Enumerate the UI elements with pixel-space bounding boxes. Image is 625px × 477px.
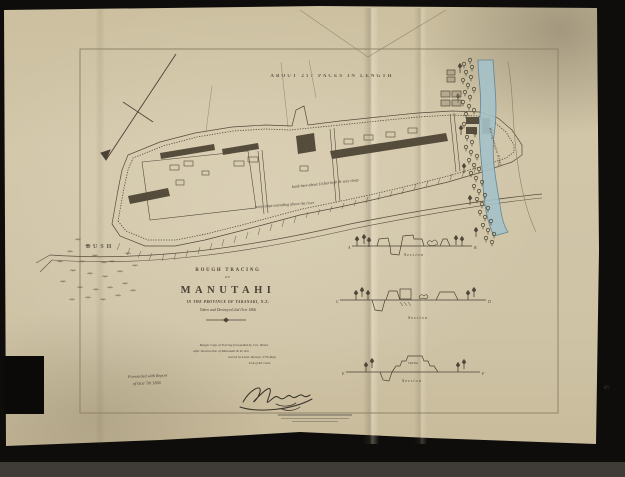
section-1-left-letter: A bbox=[347, 245, 351, 250]
length-note: ABOUT 217 PACES IN LENGTH bbox=[270, 74, 393, 79]
photographed-map: Waingongoro River bbox=[0, 0, 625, 477]
section-1-label: Section bbox=[404, 252, 424, 257]
title-name: MANUTAHI bbox=[181, 285, 276, 296]
note-line2: after Destruction of Manutahi & Te Aru bbox=[193, 349, 249, 353]
section-2-right-letter: D bbox=[487, 299, 491, 304]
pa-huts bbox=[170, 128, 417, 185]
imprint-microtext bbox=[281, 418, 349, 419]
section-3-left-letter: E bbox=[341, 371, 345, 376]
outbuildings bbox=[441, 70, 461, 106]
section-3-label: Section bbox=[402, 378, 422, 383]
pa-earthwork-walls bbox=[128, 117, 490, 204]
title-province: IN THE PROVINCE OF TARANAKI, N.Z. bbox=[186, 300, 270, 304]
bank-note: bank here about 10 feet high & very stee… bbox=[292, 177, 359, 189]
imprint-microtext bbox=[278, 414, 352, 416]
forwarded-line1: Forwarded with Report bbox=[127, 373, 168, 379]
section-3-right-letter: F bbox=[481, 371, 485, 376]
forwarded-note: Forwarded with Report of Octr 7th 1866 bbox=[127, 373, 168, 386]
note-block: Rough Copy of Tracing forwarded by Col. … bbox=[193, 343, 277, 365]
title-rough-tracing: ROUGH TRACING bbox=[195, 268, 260, 273]
section-1: A B Section bbox=[347, 234, 477, 257]
section-2: C D Section bbox=[336, 287, 491, 320]
title-block: ROUGH TRACING OF MANUTAHI IN THE PROVINC… bbox=[181, 268, 276, 323]
section-2-left-letter: C bbox=[336, 299, 339, 304]
section-3: Old Pa E F Section bbox=[341, 356, 485, 383]
section-3-feature-label: Old Pa bbox=[408, 361, 418, 365]
section-1-right-letter: B bbox=[474, 245, 477, 250]
black-tab bbox=[4, 356, 44, 414]
title-divider bbox=[206, 318, 246, 323]
slope-note: steep slope extending above the river bbox=[255, 200, 315, 209]
map-drawing: Waingongoro River bbox=[0, 0, 625, 477]
imprint-microtext bbox=[292, 421, 338, 422]
note-line4: D.A.Q.M. Genl. bbox=[248, 361, 271, 365]
title-of: OF bbox=[225, 275, 231, 279]
signature bbox=[240, 388, 312, 411]
north-arrow-icon bbox=[101, 54, 176, 160]
corner-pencil-mark: 43 bbox=[604, 385, 610, 391]
table-surface-strip bbox=[0, 462, 625, 477]
title-date: Taken and Destroyed 2nd Octr 1866 bbox=[200, 308, 256, 312]
note-line3: traced by Lieut. Rowan, 57th Regt bbox=[228, 355, 277, 360]
note-line1: Rough Copy of Tracing forwarded by Col. … bbox=[199, 343, 269, 347]
survey-rays bbox=[206, 60, 316, 131]
top-fold-lines bbox=[300, 10, 446, 57]
bush-label: BUSH bbox=[86, 244, 114, 250]
section-2-label: Section bbox=[408, 315, 428, 320]
forwarded-line2: of Octr 7th 1866 bbox=[133, 380, 162, 386]
